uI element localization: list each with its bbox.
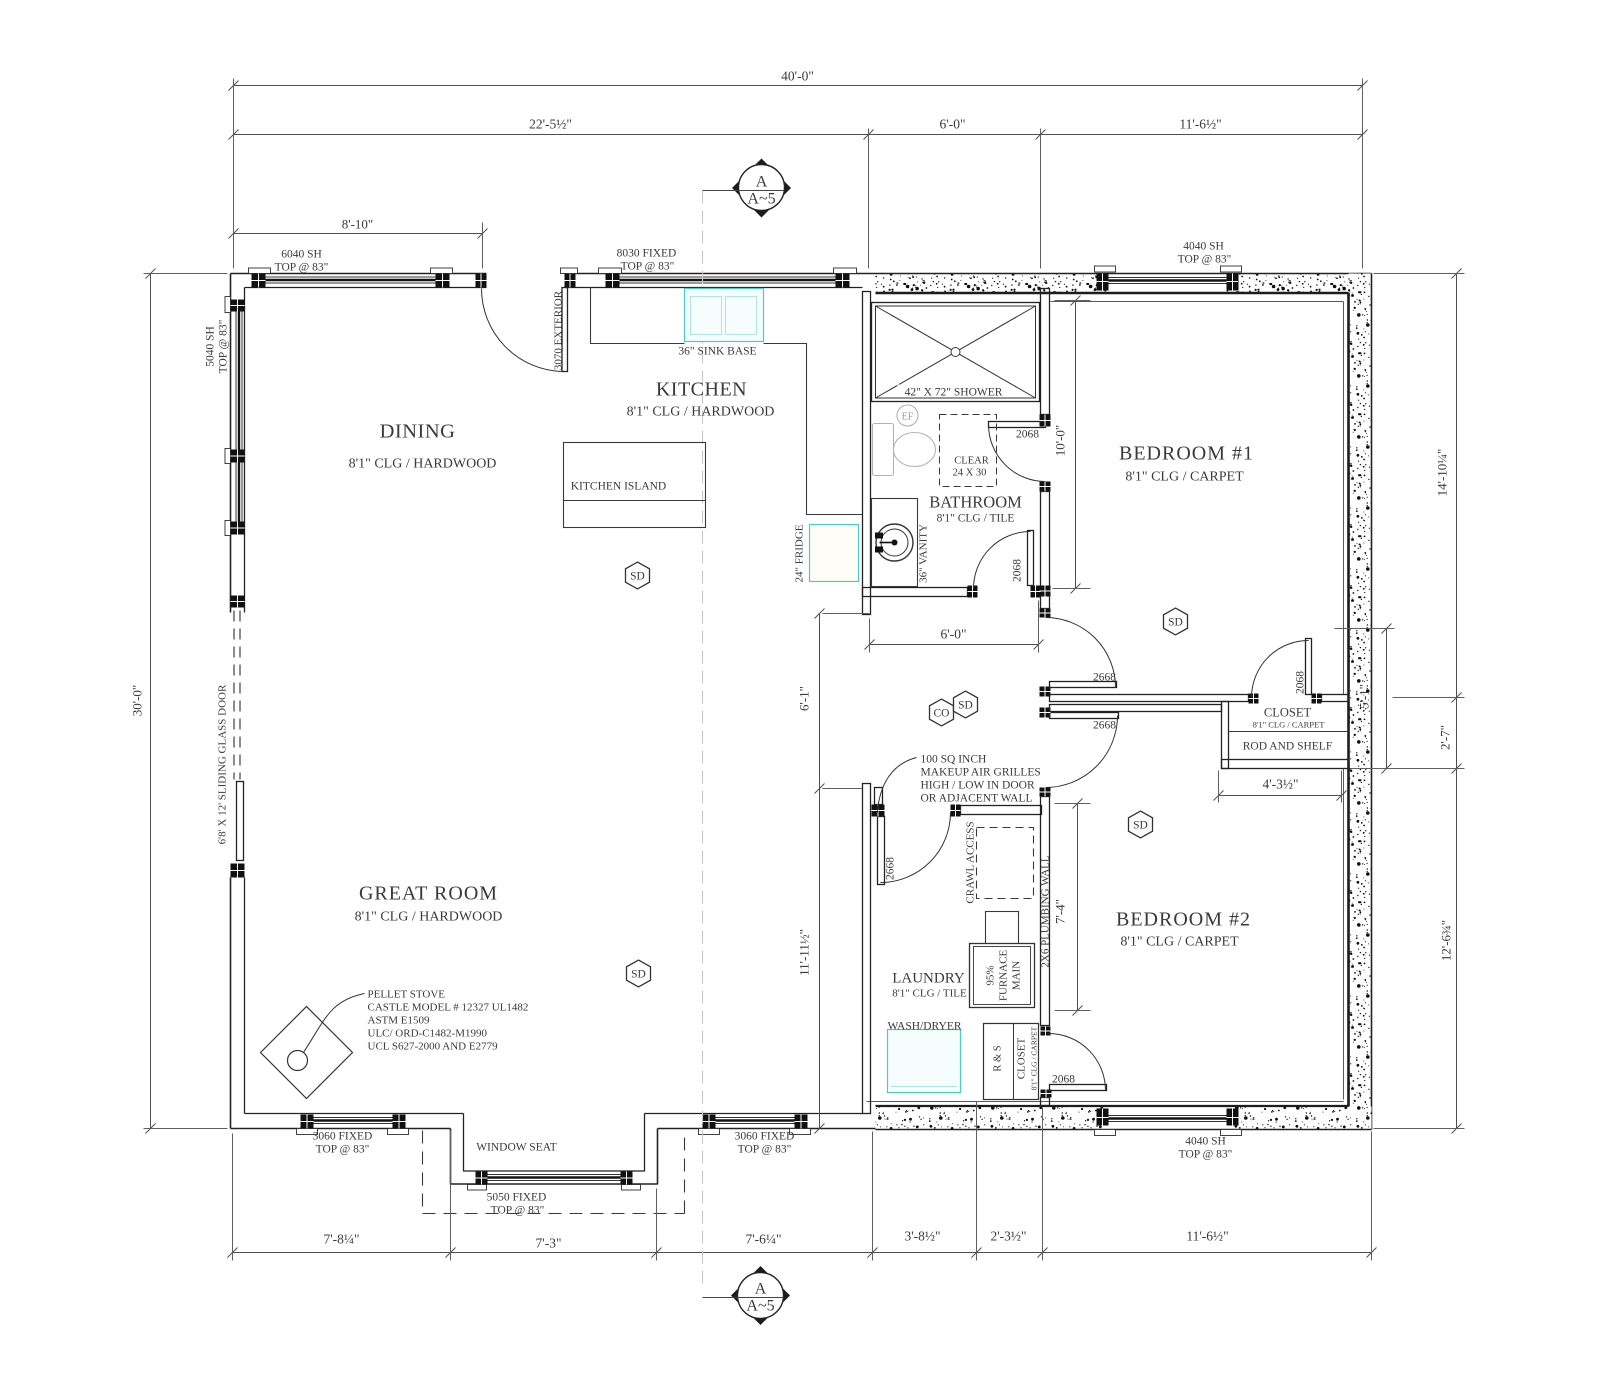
svg-text:CASTLE MODEL # 12327 UL1482: CASTLE MODEL # 12327 UL1482	[368, 1002, 529, 1014]
svg-text:8030 FIXED: 8030 FIXED	[617, 248, 677, 260]
svg-text:TOP @ 83": TOP @ 83"	[316, 1144, 370, 1156]
svg-text:ROD AND SHELF: ROD AND SHELF	[1243, 741, 1332, 753]
svg-text:6'-1": 6'-1"	[797, 686, 812, 711]
svg-text:3060 FIXED: 3060 FIXED	[313, 1131, 373, 1143]
svg-text:BEDROOM #1: BEDROOM #1	[1119, 443, 1254, 465]
svg-text:11'-6½": 11'-6½"	[1179, 117, 1221, 132]
svg-text:8'1" CLG / HARDWOOD: 8'1" CLG / HARDWOOD	[627, 405, 775, 420]
svg-text:UCL S627-2000 AND E2779: UCL S627-2000 AND E2779	[368, 1041, 499, 1053]
svg-text:3060 FIXED: 3060 FIXED	[735, 1131, 795, 1143]
svg-text:R & S: R & S	[993, 1045, 1004, 1071]
svg-text:6'8' X 12' SLIDING GLASS DOOR: 6'8' X 12' SLIDING GLASS DOOR	[217, 684, 229, 844]
svg-text:11'-6½": 11'-6½"	[1186, 1229, 1228, 1244]
svg-text:TOP @ 83": TOP @ 83"	[491, 1205, 545, 1217]
svg-text:100 SQ INCH: 100 SQ INCH	[921, 754, 987, 766]
svg-text:SD: SD	[630, 571, 645, 583]
svg-text:6'-0": 6'-0"	[940, 117, 966, 132]
svg-text:7'-4": 7'-4"	[1053, 899, 1068, 924]
svg-text:CRAWL ACCESS: CRAWL ACCESS	[965, 821, 977, 903]
svg-text:11'-11½": 11'-11½"	[797, 929, 812, 976]
svg-text:FURNACE: FURNACE	[998, 950, 1010, 1002]
svg-text:GREAT ROOM: GREAT ROOM	[359, 883, 498, 905]
svg-text:4040 SH: 4040 SH	[1185, 1136, 1226, 1148]
svg-text:KITCHEN ISLAND: KITCHEN ISLAND	[571, 481, 667, 493]
svg-text:8'1" CLG / CARPET: 8'1" CLG / CARPET	[1120, 935, 1239, 950]
svg-text:SD: SD	[1168, 617, 1183, 629]
svg-text:30'-0": 30'-0"	[130, 685, 145, 716]
svg-text:SD: SD	[958, 700, 973, 712]
svg-text:MAIN: MAIN	[1011, 961, 1023, 990]
svg-text:42" X 72" SHOWER: 42" X 72" SHOWER	[905, 387, 1003, 399]
svg-text:8'1" CLG / TILE: 8'1" CLG / TILE	[937, 513, 1015, 525]
svg-text:2668: 2668	[1093, 720, 1116, 732]
svg-text:CLOSET: CLOSET	[1264, 706, 1312, 720]
svg-text:SD: SD	[631, 969, 646, 981]
svg-text:2068: 2068	[1012, 559, 1024, 582]
svg-text:5'-1": 5'-1"	[1357, 684, 1372, 709]
svg-text:CO: CO	[934, 708, 950, 720]
svg-text:PELLET STOVE: PELLET STOVE	[368, 989, 446, 1001]
svg-text:TOP @ 83": TOP @ 83"	[1179, 1149, 1233, 1161]
svg-text:36" VANITY: 36" VANITY	[918, 524, 930, 583]
svg-text:OR ADJACENT WALL: OR ADJACENT WALL	[921, 793, 1033, 805]
svg-text:CLEAR: CLEAR	[954, 456, 988, 467]
svg-text:7'-6¼": 7'-6¼"	[745, 1232, 781, 1247]
svg-text:40'-0": 40'-0"	[781, 69, 814, 84]
svg-text:2'-7": 2'-7"	[1438, 725, 1453, 750]
svg-text:TOP @ 83": TOP @ 83"	[1178, 254, 1232, 266]
svg-text:5040 SH: 5040 SH	[205, 326, 217, 367]
svg-text:2668: 2668	[1093, 672, 1116, 684]
svg-text:2068: 2068	[1016, 429, 1039, 441]
svg-text:24 X 30: 24 X 30	[953, 468, 987, 479]
svg-text:95%: 95%	[985, 965, 997, 985]
svg-text:BATHROOM: BATHROOM	[929, 493, 1022, 512]
svg-text:6040 SH: 6040 SH	[281, 249, 322, 261]
svg-text:22'-5½": 22'-5½"	[529, 117, 572, 132]
svg-text:A: A	[756, 174, 768, 191]
svg-text:4'-3½": 4'-3½"	[1262, 777, 1298, 792]
svg-text:14'-10¼": 14'-10¼"	[1435, 449, 1450, 497]
svg-text:CLOSET: CLOSET	[1016, 1037, 1028, 1079]
svg-text:6'-0": 6'-0"	[941, 627, 967, 642]
svg-text:2068: 2068	[1052, 1074, 1075, 1086]
svg-text:A~5: A~5	[746, 1298, 774, 1315]
svg-text:WINDOW SEAT: WINDOW SEAT	[476, 1142, 557, 1154]
svg-text:LAUNDRY: LAUNDRY	[892, 971, 965, 987]
svg-text:3070 EXTERIOR: 3070 EXTERIOR	[553, 290, 565, 370]
svg-text:2668: 2668	[885, 857, 897, 880]
svg-text:5050 FIXED: 5050 FIXED	[487, 1192, 547, 1204]
svg-text:2068: 2068	[1295, 671, 1307, 694]
svg-text:TOP @ 83": TOP @ 83"	[218, 320, 230, 374]
svg-text:7'-3": 7'-3"	[536, 1236, 562, 1251]
svg-text:8'1" CLG / CARPET: 8'1" CLG / CARPET	[1030, 1026, 1039, 1090]
svg-text:8'1" CLG / CARPET: 8'1" CLG / CARPET	[1253, 720, 1326, 730]
svg-text:BEDROOM #2: BEDROOM #2	[1116, 909, 1251, 931]
svg-text:4040 SH: 4040 SH	[1183, 241, 1224, 253]
svg-text:TOP @ 83": TOP @ 83"	[621, 261, 675, 273]
svg-text:36" SINK BASE: 36" SINK BASE	[678, 346, 756, 358]
svg-text:24" FRIDGE: 24" FRIDGE	[794, 524, 806, 582]
svg-text:3'-8½": 3'-8½"	[904, 1229, 940, 1244]
svg-text:KITCHEN: KITCHEN	[656, 379, 747, 401]
svg-text:8'1" CLG / CARPET: 8'1" CLG / CARPET	[1125, 470, 1244, 485]
svg-text:TOP @ 83": TOP @ 83"	[275, 262, 329, 274]
svg-text:EF: EF	[902, 412, 914, 423]
svg-text:7'-8¼": 7'-8¼"	[323, 1232, 359, 1247]
svg-text:12'-6¾": 12'-6¾"	[1439, 920, 1454, 961]
svg-text:2'-3½": 2'-3½"	[990, 1229, 1026, 1244]
svg-text:2X6 PLUMBING WALL: 2X6 PLUMBING WALL	[1040, 855, 1052, 968]
svg-text:8'1" CLG / HARDWOOD: 8'1" CLG / HARDWOOD	[349, 457, 497, 472]
svg-text:10'-0": 10'-0"	[1053, 425, 1068, 456]
svg-text:SD: SD	[1133, 820, 1148, 832]
svg-text:DINING: DINING	[380, 421, 456, 443]
svg-text:8'-10": 8'-10"	[342, 217, 373, 232]
svg-text:HIGH / LOW IN DOOR: HIGH / LOW IN DOOR	[921, 780, 1035, 792]
svg-text:MAKEUP AIR GRILLES: MAKEUP AIR GRILLES	[921, 767, 1041, 779]
svg-text:8'1" CLG / TILE: 8'1" CLG / TILE	[892, 988, 967, 1000]
svg-text:8'1" CLG / HARDWOOD: 8'1" CLG / HARDWOOD	[355, 910, 503, 925]
svg-text:A~5: A~5	[747, 191, 775, 208]
svg-text:ASTM E1509: ASTM E1509	[368, 1015, 431, 1027]
svg-text:ULC/ ORD-C1482-M1990: ULC/ ORD-C1482-M1990	[368, 1028, 488, 1040]
svg-text:TOP @ 83": TOP @ 83"	[738, 1144, 792, 1156]
svg-text:WASH/DRYER: WASH/DRYER	[887, 1021, 961, 1033]
svg-text:A: A	[755, 1281, 767, 1298]
